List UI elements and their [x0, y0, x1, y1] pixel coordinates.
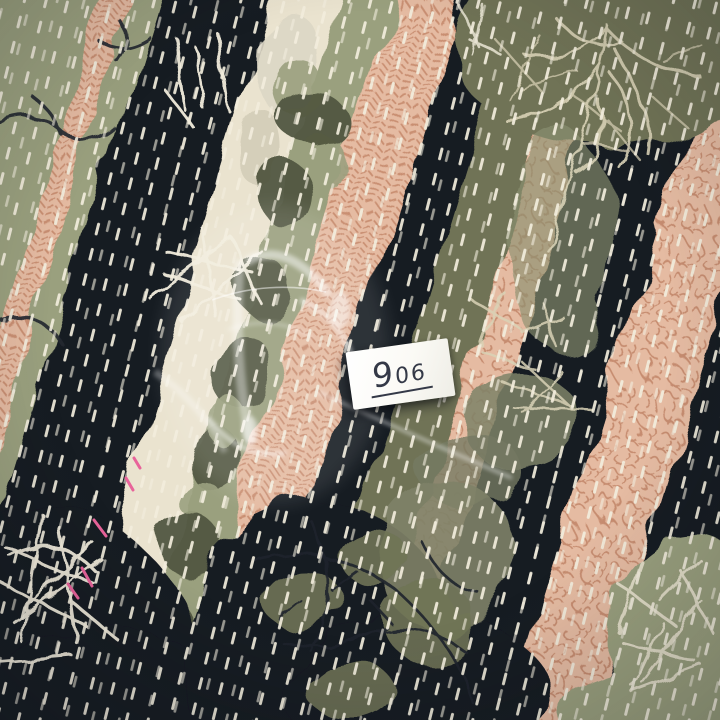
fabric-photo: 906 — [0, 0, 720, 720]
handwritten-number: 906 — [369, 350, 433, 399]
